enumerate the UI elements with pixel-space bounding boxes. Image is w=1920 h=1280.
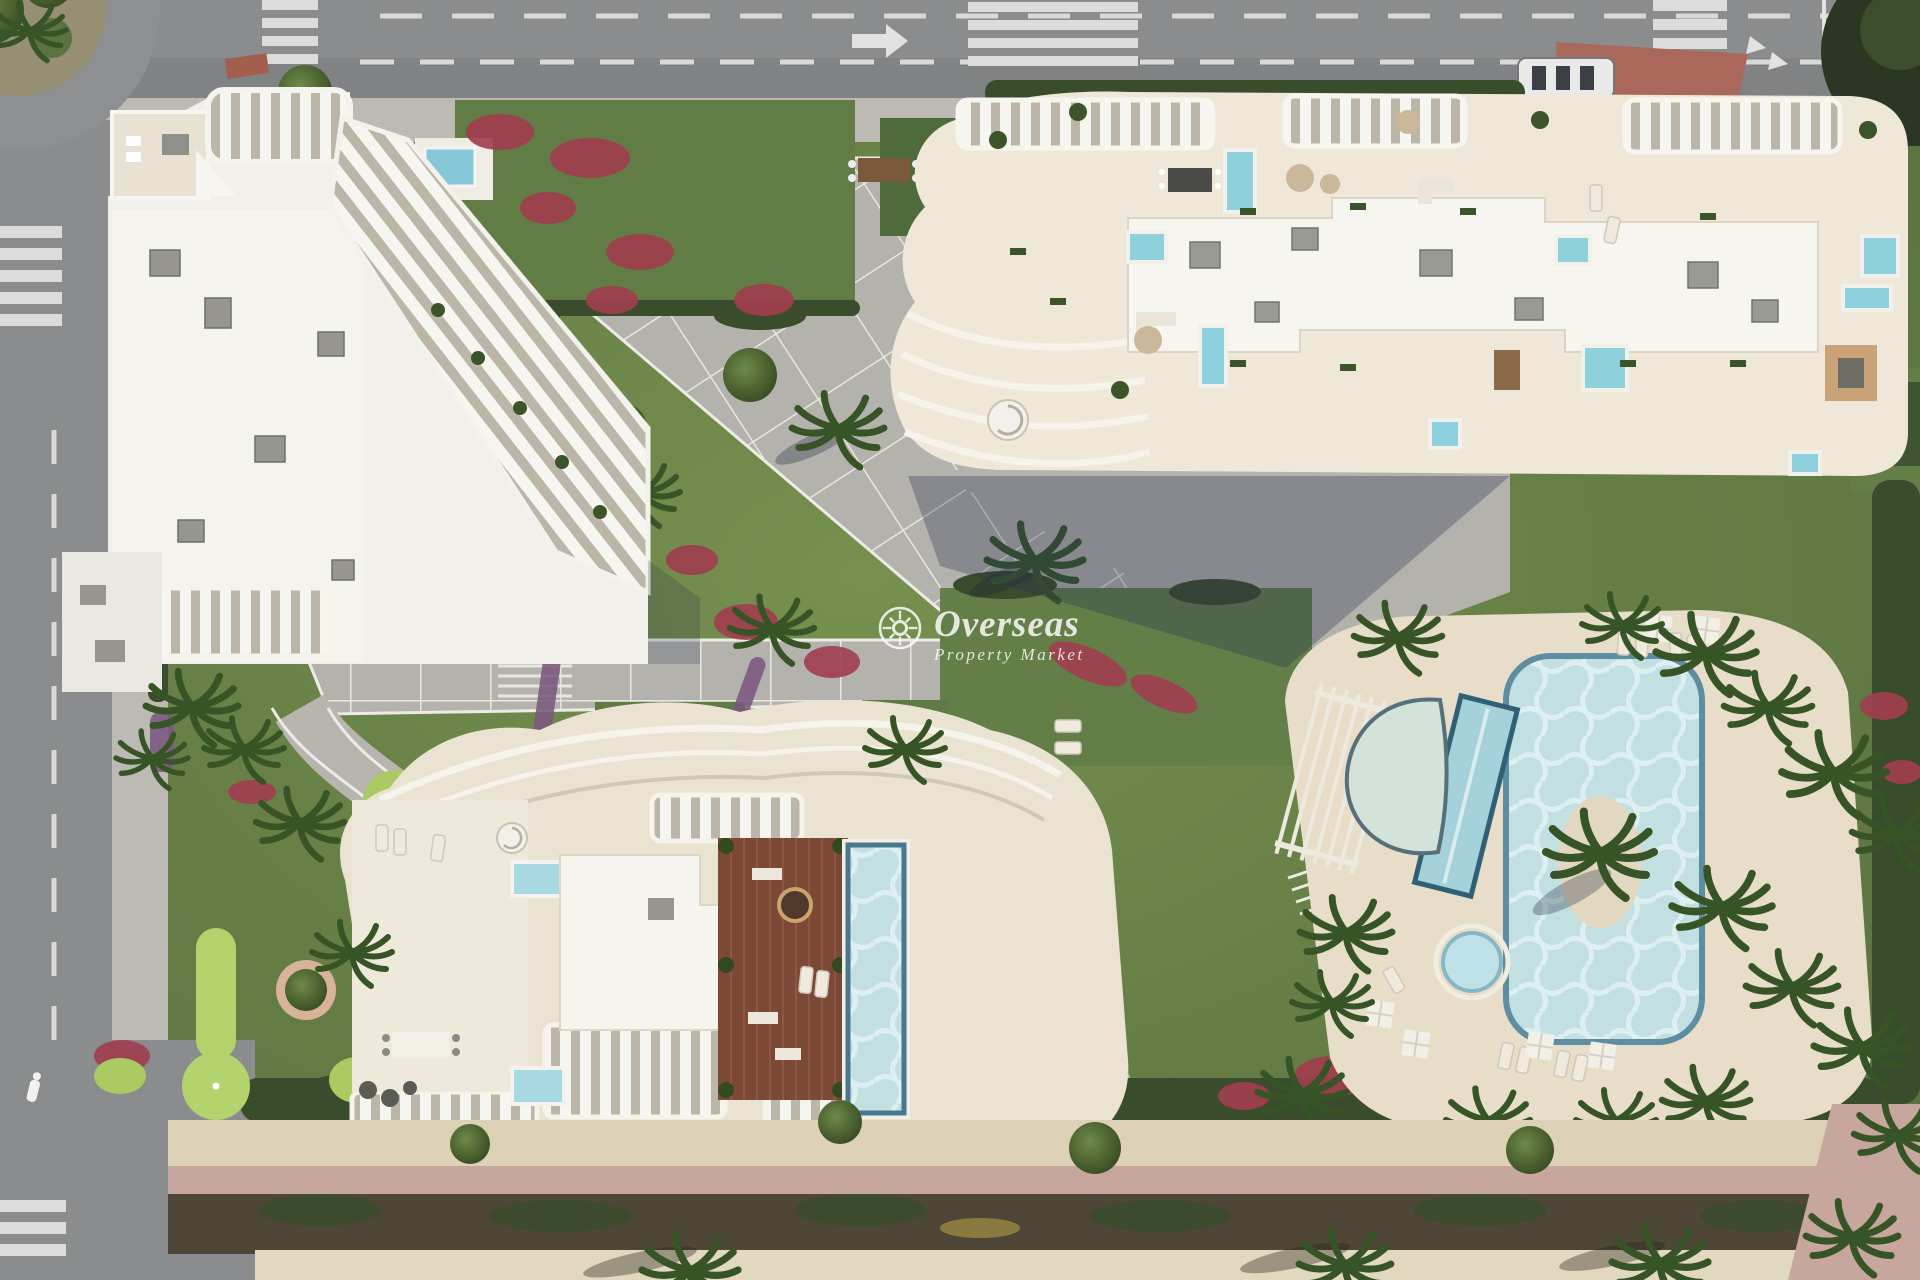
fire-pit <box>779 889 811 921</box>
sand-path <box>168 1120 1920 1168</box>
picnic-table <box>848 158 920 182</box>
pink-paving <box>168 1166 1920 1196</box>
plaza-tree <box>723 348 777 402</box>
rooftop-wood-deck <box>718 838 848 1100</box>
aerial-render: Overseas Property Market <box>0 0 1920 1280</box>
nw-fin-block <box>208 90 350 162</box>
apartment-building-northeast <box>891 92 1908 476</box>
s-plunge-pool-2 <box>512 1068 564 1104</box>
white-van <box>1518 58 1614 98</box>
spiral-stair <box>988 400 1028 440</box>
pool-complex <box>1258 594 1920 1156</box>
site-plan-canvas <box>0 0 1920 1280</box>
zebra-crossing-bottom-left <box>0 1200 66 1256</box>
beach-promenade <box>168 1100 1920 1280</box>
s-spiral-stair <box>497 823 527 853</box>
apartment-building-south <box>340 700 1128 1160</box>
s-plunge-pool-1 <box>512 862 564 896</box>
s-dining-table <box>392 1032 450 1058</box>
promenade-tree <box>450 1124 490 1164</box>
nw-annex <box>62 552 162 692</box>
kids-pool <box>1443 933 1501 991</box>
s-infinity-pool <box>848 845 904 1113</box>
